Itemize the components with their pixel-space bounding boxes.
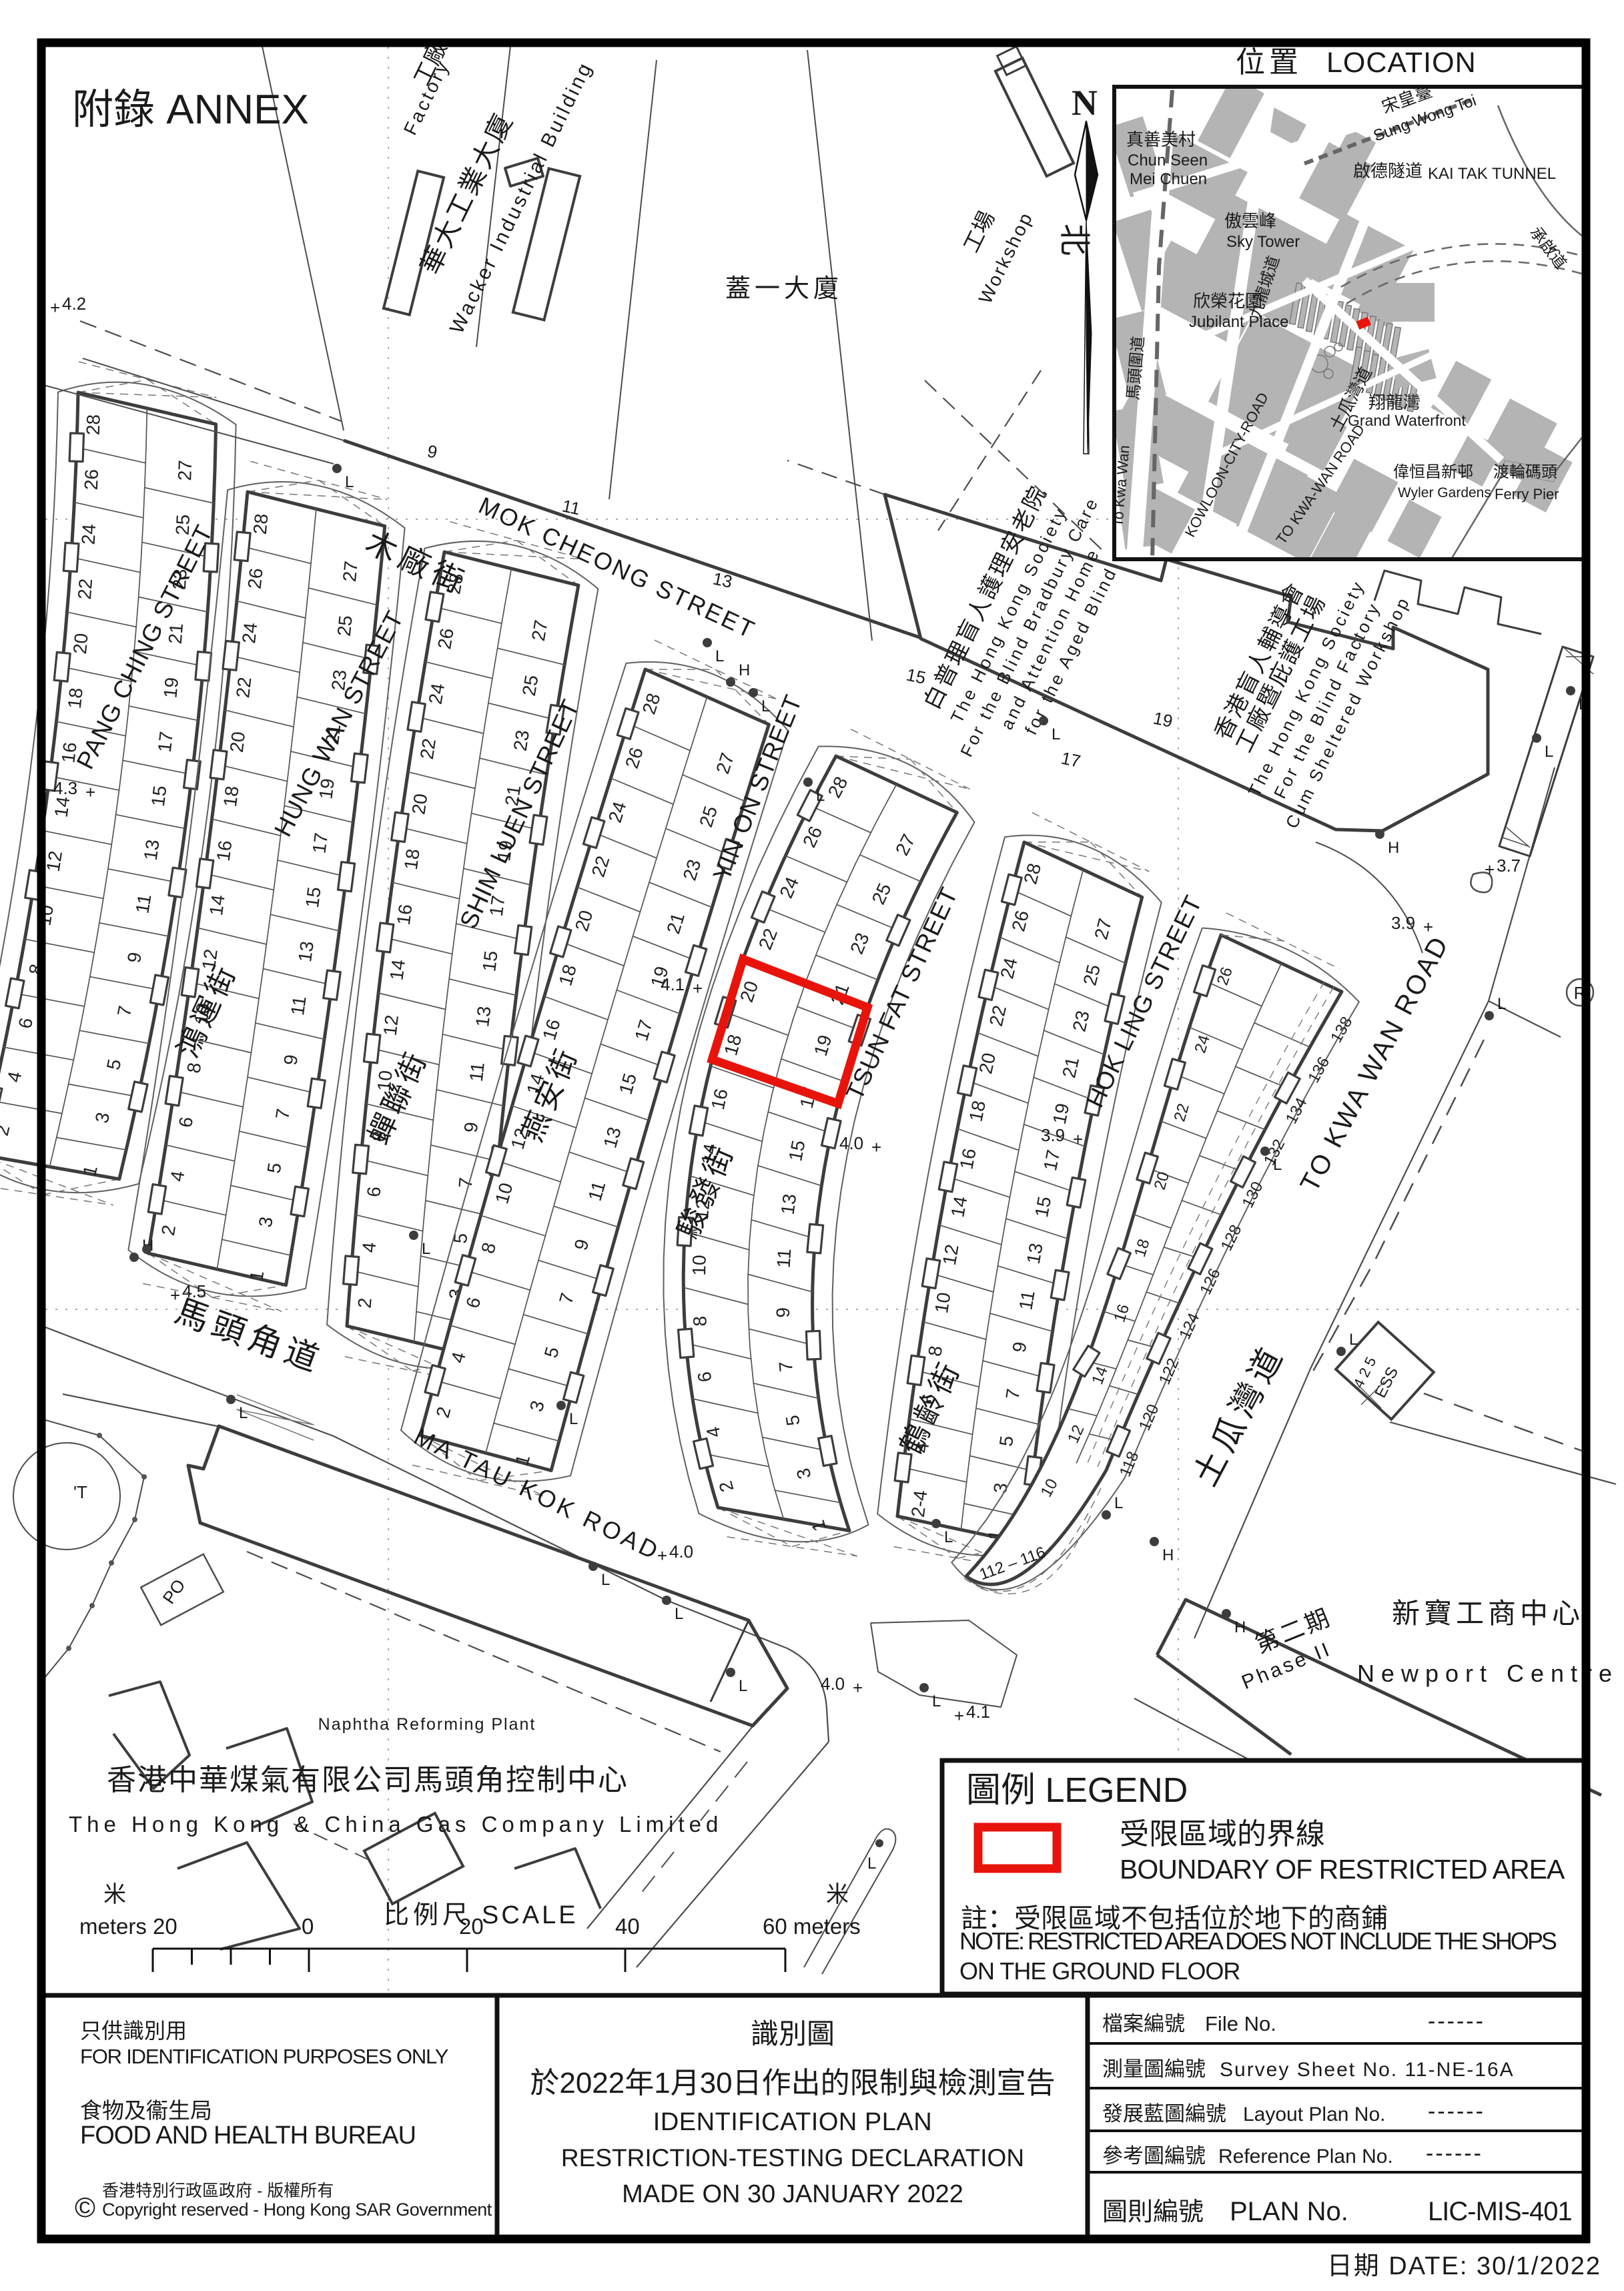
svg-text:4.0: 4.0 [669,1542,693,1562]
svg-text:'T: 'T [73,1482,87,1502]
svg-text:40: 40 [615,1914,640,1939]
svg-text:日期 DATE: 30/1/2022: 日期 DATE: 30/1/2022 [1327,2252,1601,2280]
svg-text:KAI TAK TUNNEL: KAI TAK TUNNEL [1428,165,1556,183]
svg-text:RESTRICTION-TESTING DECLARATIO: RESTRICTION-TESTING DECLARATION [561,2144,1024,2172]
svg-text:20: 20 [408,792,431,815]
svg-text:Sky Tower: Sky Tower [1226,233,1300,251]
svg-text:L: L [239,1404,248,1422]
svg-text:受限區域的界線: 受限區域的界線 [1120,1818,1325,1851]
svg-text:3.9: 3.9 [1041,1125,1065,1145]
svg-text:IDENTIFICATION PLAN: IDENTIFICATION PLAN [653,2108,932,2136]
svg-text:19: 19 [1152,708,1175,731]
svg-text:L: L [1497,995,1506,1013]
svg-text:23: 23 [510,729,533,753]
svg-text:12: 12 [43,850,66,873]
svg-text:Jubilant Place: Jubilant Place [1189,313,1288,331]
svg-text:13: 13 [140,838,163,862]
svg-text:11: 11 [131,892,155,915]
svg-text:16: 16 [956,1147,980,1171]
svg-text:H: H [1234,1618,1246,1636]
svg-text:4: 4 [358,1241,380,1253]
svg-text:19: 19 [1049,1102,1074,1126]
svg-text:測量圖編號: 測量圖編號 [1102,2057,1206,2081]
svg-text:Grand Waterfront: Grand Waterfront [1348,412,1466,429]
svg-text:18: 18 [400,848,424,871]
svg-text:圖則編號: 圖則編號 [1102,2198,1204,2226]
svg-text:------: ------ [1426,2141,1483,2166]
svg-text:參考圖編號: 參考圖編號 [1102,2144,1206,2168]
svg-text:15: 15 [1031,1195,1055,1219]
svg-text:13: 13 [472,1005,494,1028]
svg-text:L: L [345,473,354,491]
svg-text:9: 9 [460,1121,482,1134]
svg-text:14: 14 [206,894,229,917]
svg-text:2-4: 2-4 [907,1489,931,1518]
svg-text:22: 22 [74,578,96,600]
svg-text:L: L [715,647,724,665]
svg-text:H: H [1388,839,1399,857]
svg-text:位置: 位置 [1236,46,1302,79]
svg-text:4.3: 4.3 [53,778,77,798]
svg-text:Layout Plan No.: Layout Plan No. [1243,2103,1385,2125]
svg-text:------: ------ [1428,2009,1485,2034]
svg-text:識別圖: 識別圖 [751,2018,835,2049]
svg-text:+: + [954,1706,964,1726]
svg-text:NOTE: RESTRICTED AREA DOES NOT: NOTE: RESTRICTED AREA DOES NOT INCLUDE T… [959,1927,1557,1955]
svg-text:H: H [739,661,750,679]
svg-text:+: + [853,1678,863,1698]
svg-text:檔案編號: 檔案編號 [1102,2012,1185,2035]
svg-text:15: 15 [147,784,171,807]
svg-text:14: 14 [947,1195,971,1219]
svg-text:L: L [1349,1331,1358,1349]
svg-text:SCALE: SCALE [482,1901,578,1929]
svg-text:25: 25 [518,673,542,697]
svg-text:渡輪碼頭: 渡輪碼頭 [1493,463,1557,481]
svg-text:4.1: 4.1 [966,1702,990,1722]
svg-text:附錄 ANNEX: 附錄 ANNEX [72,87,309,133]
svg-text:13: 13 [1023,1241,1047,1265]
svg-text:4.0: 4.0 [821,1674,845,1694]
svg-text:26: 26 [81,468,102,490]
svg-text:15: 15 [785,1138,809,1163]
svg-text:18: 18 [220,785,243,808]
svg-text:4.2: 4.2 [62,294,86,314]
svg-text:3.7: 3.7 [1497,856,1521,876]
svg-text:LIC-MIS-401: LIC-MIS-401 [1428,2197,1572,2226]
svg-text:16: 16 [707,1087,732,1112]
svg-text:17: 17 [154,731,177,753]
svg-text:Ferry Pier: Ferry Pier [1495,486,1559,503]
svg-text:8: 8 [689,1315,711,1327]
svg-text:於2022年1月30日作出的限制與檢測宣告: 於2022年1月30日作出的限制與檢測宣告 [530,2067,1055,2099]
svg-text:6: 6 [363,1186,384,1198]
svg-text:真善美村: 真善美村 [1126,129,1196,149]
svg-text:File No.: File No. [1205,2012,1276,2035]
svg-text:食物及衞生局: 食物及衞生局 [80,2098,212,2123]
svg-text:21: 21 [1058,1055,1083,1080]
svg-text:20: 20 [226,731,249,754]
svg-text:L: L [601,1571,610,1589]
svg-text:蓋一大廈: 蓋一大廈 [725,275,843,303]
svg-text:11: 11 [773,1248,795,1269]
svg-text:26: 26 [434,627,458,651]
svg-text:24: 24 [425,682,449,706]
svg-text:L: L [761,697,770,715]
svg-text:meters 20: meters 20 [79,1914,177,1939]
svg-text:+: + [657,1546,667,1566]
svg-text:+: + [871,1137,881,1157]
svg-text:L: L [816,787,825,805]
svg-text:9: 9 [773,1307,793,1318]
svg-text:17: 17 [1040,1148,1064,1173]
svg-text:18: 18 [64,687,87,709]
svg-text:60 meters: 60 meters [763,1914,861,1939]
svg-text:14: 14 [51,795,74,819]
svg-text:只供識別用: 只供識別用 [80,2019,187,2043]
svg-text:新寶工商中心: 新寶工商中心 [1392,1598,1584,1629]
svg-text:比例尺: 比例尺 [384,1901,472,1929]
svg-text:Reference Plan No.: Reference Plan No. [1218,2146,1393,2168]
svg-text:13: 13 [711,569,735,592]
svg-text:Newport Centre: Newport Centre [1357,1660,1619,1687]
svg-text:©: © [75,2192,95,2223]
svg-text:27: 27 [339,560,362,583]
svg-text:11: 11 [1015,1289,1038,1312]
svg-text:L: L [1545,743,1553,761]
svg-text:Mei Chuen: Mei Chuen [1130,170,1207,188]
svg-text:7: 7 [775,1361,797,1373]
svg-text:ON THE GROUND FLOOR: ON THE GROUND FLOOR [959,1957,1240,1985]
svg-text:+: + [1073,1129,1083,1149]
svg-text:+: + [1423,917,1433,937]
svg-text:L: L [1114,1494,1123,1512]
svg-text:20: 20 [975,1051,999,1076]
svg-text:Survey Sheet No. 11-NE-16A: Survey Sheet No. 11-NE-16A [1220,2059,1515,2081]
svg-text:12: 12 [380,1014,402,1036]
svg-text:偉恒昌新邨: 偉恒昌新邨 [1393,463,1473,481]
svg-text:Copyright reserved - Hong Kong: Copyright reserved - Hong Kong SAR Gover… [102,2200,492,2220]
svg-text:28: 28 [83,414,104,436]
svg-text:MADE ON 30 JANUARY 2022: MADE ON 30 JANUARY 2022 [622,2180,963,2208]
svg-text:L: L [1052,725,1060,743]
svg-text:發展藍圖編號: 發展藍圖編號 [1102,2102,1226,2125]
svg-text:19: 19 [159,677,182,699]
svg-text:14: 14 [386,958,409,982]
svg-text:4.0: 4.0 [839,1133,863,1153]
svg-text:4.5: 4.5 [182,1281,206,1301]
svg-text:翔龍灣: 翔龍灣 [1368,392,1420,412]
svg-text:10: 10 [931,1291,955,1315]
svg-text:12: 12 [939,1243,963,1267]
svg-text:15: 15 [905,665,928,688]
svg-text:L: L [739,1677,747,1695]
svg-text:22: 22 [232,676,255,699]
svg-text:Wyler Gardens: Wyler Gardens [1398,485,1491,501]
svg-text:啟德隧道: 啟德隧道 [1353,161,1423,181]
svg-text:PLAN No.: PLAN No. [1230,2197,1348,2226]
svg-text:L: L [675,1605,683,1623]
svg-text:BOUNDARY OF RESTRICTED AREA: BOUNDARY OF RESTRICTED AREA [1120,1854,1565,1885]
svg-text:+: + [50,298,60,318]
svg-text:18: 18 [965,1099,989,1124]
svg-text:20: 20 [69,633,92,655]
svg-text:15: 15 [478,950,502,973]
svg-text:香港特別行政區政府 - 版權所有: 香港特別行政區政府 - 版權所有 [102,2182,334,2200]
svg-text:24: 24 [238,621,261,644]
svg-text:L: L [569,1410,578,1428]
svg-text:13: 13 [294,940,318,963]
svg-text:3.9: 3.9 [1391,913,1415,933]
svg-text:LOCATION: LOCATION [1326,47,1477,79]
svg-text:------: ------ [1428,2099,1485,2124]
svg-text:16: 16 [393,903,416,926]
svg-text:Chun Seen: Chun Seen [1128,151,1208,170]
svg-text:7: 7 [455,1177,476,1189]
svg-text:+: + [693,978,703,998]
svg-text:24: 24 [78,523,100,545]
svg-text:0: 0 [302,1914,314,1939]
svg-text:11: 11 [466,1061,488,1082]
svg-text:15: 15 [302,886,325,909]
svg-text:L: L [932,1692,941,1710]
svg-text:27: 27 [528,619,552,643]
svg-text:4.1: 4.1 [661,974,685,994]
svg-text:26: 26 [244,567,267,590]
svg-text:13: 13 [777,1193,801,1216]
svg-text:17: 17 [1060,748,1083,771]
svg-text:北: 北 [1056,224,1092,256]
svg-text:2: 2 [354,1297,376,1309]
svg-text:傲雲峰: 傲雲峰 [1224,211,1276,231]
svg-text:17: 17 [308,832,332,855]
svg-text:10: 10 [689,1255,710,1276]
svg-text:FOOD AND HEALTH BUREAU: FOOD AND HEALTH BUREAU [80,2121,416,2150]
svg-text:Naphtha Reforming Plant: Naphtha Reforming Plant [318,1715,536,1734]
svg-text:28: 28 [250,513,272,535]
svg-text:22: 22 [416,737,440,760]
svg-text:FOR IDENTIFICATION PURPOSES ON: FOR IDENTIFICATION PURPOSES ONLY [80,2045,448,2068]
svg-text:圖例 LEGEND: 圖例 LEGEND [966,1771,1188,1810]
svg-text:N: N [1072,83,1098,123]
svg-text:L: L [1273,1156,1282,1174]
svg-text:米: 米 [826,1882,849,1907]
svg-text:25: 25 [334,615,356,637]
svg-text:H: H [1162,1546,1174,1564]
svg-text:香港中華煤氣有限公司馬頭角控制中心: 香港中華煤氣有限公司馬頭角控制中心 [107,1764,629,1796]
svg-text:16: 16 [213,839,236,862]
svg-text:+: + [1485,860,1495,880]
svg-text:欣榮花園: 欣榮花園 [1193,291,1262,311]
svg-text:+: + [85,782,95,802]
svg-text:米: 米 [103,1882,126,1907]
svg-text:11: 11 [287,995,310,1017]
svg-text:L: L [944,1528,953,1546]
svg-text:+: + [170,1285,180,1305]
svg-text:L: L [867,1855,876,1873]
svg-text:The Hong Kong & China Gas Comp: The Hong Kong & China Gas Company Limite… [69,1812,723,1837]
svg-text:L: L [422,1240,430,1258]
svg-text:27: 27 [174,460,195,481]
